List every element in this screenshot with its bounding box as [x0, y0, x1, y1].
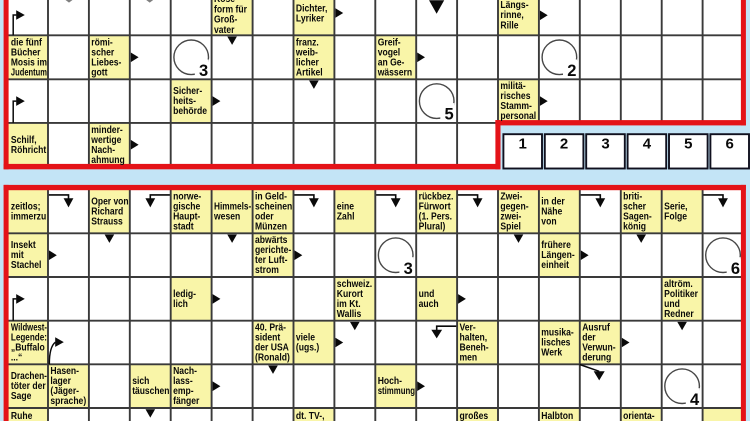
svg-text:von: von — [541, 216, 557, 227]
svg-text:wässern: wässern — [377, 67, 413, 78]
svg-text:personal: personal — [500, 111, 536, 122]
svg-text:Münzen: Münzen — [255, 221, 287, 232]
svg-text:stimmung: stimmung — [378, 385, 415, 396]
svg-text:strom: strom — [255, 265, 279, 276]
svg-text:Strauss: Strauss — [91, 216, 123, 227]
svg-text:fänger: fänger — [173, 396, 200, 407]
svg-text:men: men — [460, 352, 478, 363]
svg-text:lich: lich — [173, 298, 188, 309]
svg-text:2: 2 — [567, 62, 576, 80]
svg-text:6: 6 — [731, 260, 740, 278]
svg-text:derung: derung — [582, 352, 611, 363]
svg-text:2: 2 — [560, 136, 568, 153]
svg-text:Wallis: Wallis — [337, 308, 362, 319]
svg-text:orienta-: orienta- — [623, 410, 654, 421]
svg-text:Rille: Rille — [500, 20, 518, 31]
svg-text:Artikel: Artikel — [296, 67, 323, 78]
svg-text:gott: gott — [91, 67, 107, 78]
svg-text:Stachel: Stachel — [11, 260, 42, 271]
svg-text:Ruhe: Ruhe — [11, 410, 32, 421]
svg-text:wesen: wesen — [213, 211, 240, 222]
svg-text:4: 4 — [643, 136, 652, 153]
svg-text:behörde: behörde — [173, 106, 207, 117]
svg-text:Röhricht: Röhricht — [11, 144, 46, 155]
svg-text:Werk: Werk — [541, 347, 563, 358]
svg-text:Redner: Redner — [664, 308, 694, 319]
svg-text:5: 5 — [445, 106, 454, 124]
svg-text:sprache): sprache) — [50, 396, 86, 407]
svg-text:Längs-: Längs- — [500, 0, 528, 10]
svg-text:großes: großes — [460, 410, 489, 421]
svg-text:immerzu: immerzu — [11, 211, 47, 222]
svg-text:(ugs.): (ugs.) — [296, 342, 319, 353]
svg-text:3: 3 — [601, 136, 609, 153]
svg-text:vater: vater — [214, 24, 235, 35]
svg-text:ahmung: ahmung — [91, 154, 125, 165]
svg-text:Groß-: Groß- — [214, 14, 237, 25]
svg-text:Halbton: Halbton — [541, 410, 573, 421]
svg-text:3: 3 — [404, 260, 413, 278]
svg-text:Judentum: Judentum — [11, 66, 47, 77]
svg-text:rinne,: rinne, — [500, 10, 523, 21]
svg-text:täuschen: täuschen — [132, 385, 170, 396]
svg-text:Zahl: Zahl — [337, 211, 355, 222]
svg-text:5: 5 — [684, 136, 692, 153]
svg-text:auch: auch — [419, 298, 439, 309]
svg-text:Sage: Sage — [11, 391, 32, 402]
svg-text:1: 1 — [519, 136, 527, 153]
svg-text:3: 3 — [199, 62, 208, 80]
svg-text:(Ronald): (Ronald) — [255, 352, 290, 363]
svg-text:6: 6 — [726, 136, 734, 153]
svg-text:stadt: stadt — [173, 221, 194, 232]
svg-text:Plural): Plural) — [419, 221, 446, 232]
svg-text:Dichter,: Dichter, — [296, 3, 328, 14]
svg-text:form für: form für — [214, 4, 247, 15]
svg-text:könig: könig — [623, 221, 646, 232]
svg-text:4: 4 — [690, 391, 700, 409]
svg-text:dt. TV-,: dt. TV-, — [296, 410, 325, 421]
svg-text:Lyriker: Lyriker — [296, 13, 325, 24]
svg-text:Folge: Folge — [664, 211, 687, 222]
svg-text:...“: ...“ — [11, 352, 22, 363]
svg-text:einheit: einheit — [541, 260, 569, 271]
svg-text:Spiel: Spiel — [500, 221, 521, 232]
